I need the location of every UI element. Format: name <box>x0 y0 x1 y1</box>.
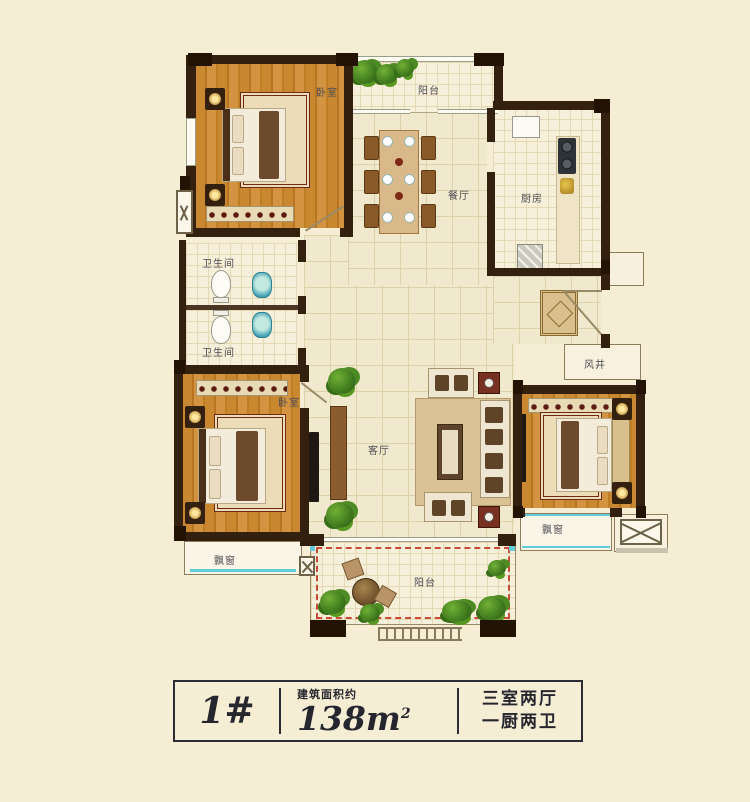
shaft-label: 风井 <box>584 356 606 371</box>
bedroom2-headboard <box>199 429 206 503</box>
dining-label: 餐厅 <box>448 187 470 202</box>
bowl <box>395 192 403 200</box>
bedroom1-label: 卧室 <box>316 84 338 99</box>
hall-console <box>330 406 347 500</box>
pillow <box>209 436 221 466</box>
dining-chair <box>364 136 379 160</box>
bedroom3-blanket <box>561 421 579 489</box>
plate <box>404 174 415 185</box>
dining-chair <box>421 204 436 228</box>
left-window-gap <box>186 118 196 166</box>
pillow <box>597 426 608 454</box>
plate <box>382 174 393 185</box>
ac-sill <box>616 548 668 553</box>
pillow <box>232 147 244 175</box>
pillow <box>209 469 221 499</box>
kitchen-items <box>560 178 574 194</box>
unit-number: 1# <box>175 690 279 732</box>
plate <box>382 136 393 147</box>
rooms-description: 三室两厅 一厨两卫 <box>459 688 581 734</box>
kitchen-label: 厨房 <box>521 190 543 205</box>
plate <box>382 212 393 223</box>
bedroom1-blanket <box>259 111 279 179</box>
balcony-top-label: 阳台 <box>418 82 440 97</box>
bedroom2-lamp-bottom <box>185 502 205 524</box>
kitchen-floor <box>493 108 601 273</box>
dining-balcony-door-left <box>350 109 410 114</box>
entry-mat <box>540 290 578 336</box>
left-window <box>176 190 193 234</box>
living-label: 客厅 <box>368 442 390 457</box>
tv-left <box>309 432 319 502</box>
bath1-floor <box>186 243 298 305</box>
area-block: 建筑面积约 138m2 <box>281 686 457 737</box>
balcony-plant-1 <box>320 590 346 614</box>
bay-right-glass-top <box>522 514 610 516</box>
fridge <box>512 116 540 138</box>
balcony-plant-2 <box>360 604 380 622</box>
balcony-railing <box>378 627 462 641</box>
spec-bar: 1# 建筑面积约 138m2 三室两厅 一厨两卫 <box>173 680 583 742</box>
bay-left-glass <box>190 569 296 572</box>
bedroom1-bed <box>222 108 286 182</box>
bedroom1-cabinet <box>206 206 294 222</box>
coffee-table <box>437 424 463 480</box>
plate <box>404 136 415 147</box>
entry-door-line <box>564 290 602 292</box>
pillow <box>232 115 244 143</box>
bedroom2-blanket <box>236 431 258 501</box>
balcony-top-plant-3 <box>396 59 414 77</box>
sofa-chaise-bottom <box>424 492 472 522</box>
bath2-toilet <box>211 316 231 344</box>
bay-right-glass-bottom <box>522 546 610 548</box>
sofa-main <box>480 400 510 498</box>
floor-plan-page: 卧室 阳台 餐厅 厨房 卫生间 卫生间 卧室 <box>0 0 750 802</box>
bay-left-label: 飘窗 <box>214 552 236 567</box>
pillow <box>597 457 608 485</box>
rooms-line2: 一厨两卫 <box>459 711 581 734</box>
ac-unit <box>620 519 662 545</box>
bath1-label: 卫生间 <box>202 255 235 270</box>
side-table-top <box>478 372 500 394</box>
balcony-plant-4 <box>478 596 506 620</box>
bedroom1-headboard <box>223 109 230 181</box>
bedroom3-lamp-top <box>612 398 632 420</box>
rooms-line1: 三室两厅 <box>459 688 581 711</box>
bedroom3-lamp-bottom <box>612 482 632 504</box>
bath1-toilet <box>211 270 231 298</box>
bedroom1-lamp-bottom <box>205 184 225 206</box>
plate <box>404 212 415 223</box>
dining-chair <box>364 170 379 194</box>
bedroom2-cabinet <box>196 380 288 396</box>
balcony-plant-5 <box>488 560 506 576</box>
bath2-label: 卫生间 <box>202 344 235 359</box>
balcony-top-plant-2 <box>376 64 398 84</box>
bath1-basin <box>252 272 272 298</box>
kitchen-sink <box>517 244 543 270</box>
bedroom2-lamp-top <box>185 406 205 428</box>
area-value: 138m2 <box>297 702 457 737</box>
hall-palm-top <box>328 368 356 394</box>
bowl <box>395 158 403 166</box>
bath1-tank <box>213 297 229 303</box>
bath-divider <box>186 305 298 310</box>
bath2-basin <box>252 312 272 338</box>
balcony-bottom-label: 阳台 <box>414 574 436 589</box>
entry-step <box>608 252 644 286</box>
hall-palm-bottom <box>326 502 354 528</box>
dining-chair <box>421 136 436 160</box>
bedroom2-label: 卧室 <box>278 394 300 409</box>
bay-right-label: 飘窗 <box>542 521 564 536</box>
dining-chair <box>421 170 436 194</box>
side-table-bottom <box>478 506 500 528</box>
stove <box>558 138 576 174</box>
patio-table <box>352 578 380 606</box>
living-balcony-window <box>322 537 500 542</box>
bath2-floor <box>186 310 298 368</box>
bedroom1-lamp-top <box>205 88 225 110</box>
dining-chair <box>364 204 379 228</box>
balcony-plant-3 <box>442 600 472 622</box>
bedroom2-bed <box>198 428 266 504</box>
bedroom3-bed <box>556 418 612 492</box>
sofa-chaise-top <box>428 368 474 398</box>
column-box <box>299 556 315 576</box>
